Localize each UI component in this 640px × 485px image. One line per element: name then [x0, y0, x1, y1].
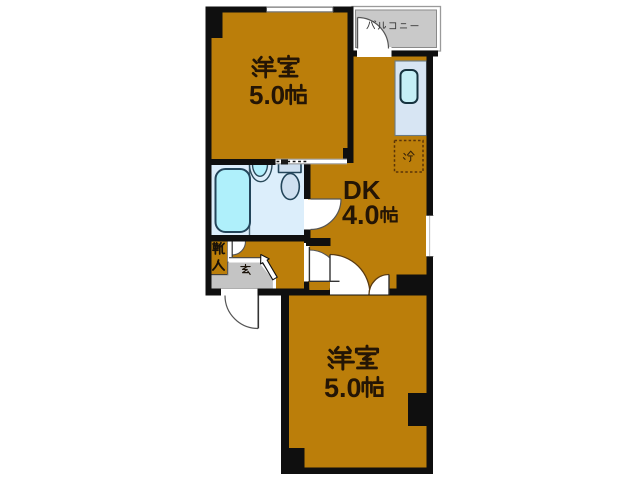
- svg-text:5.0: 5.0: [324, 373, 362, 403]
- svg-text:5.0: 5.0: [249, 80, 285, 110]
- svg-text:4.0: 4.0: [342, 200, 380, 230]
